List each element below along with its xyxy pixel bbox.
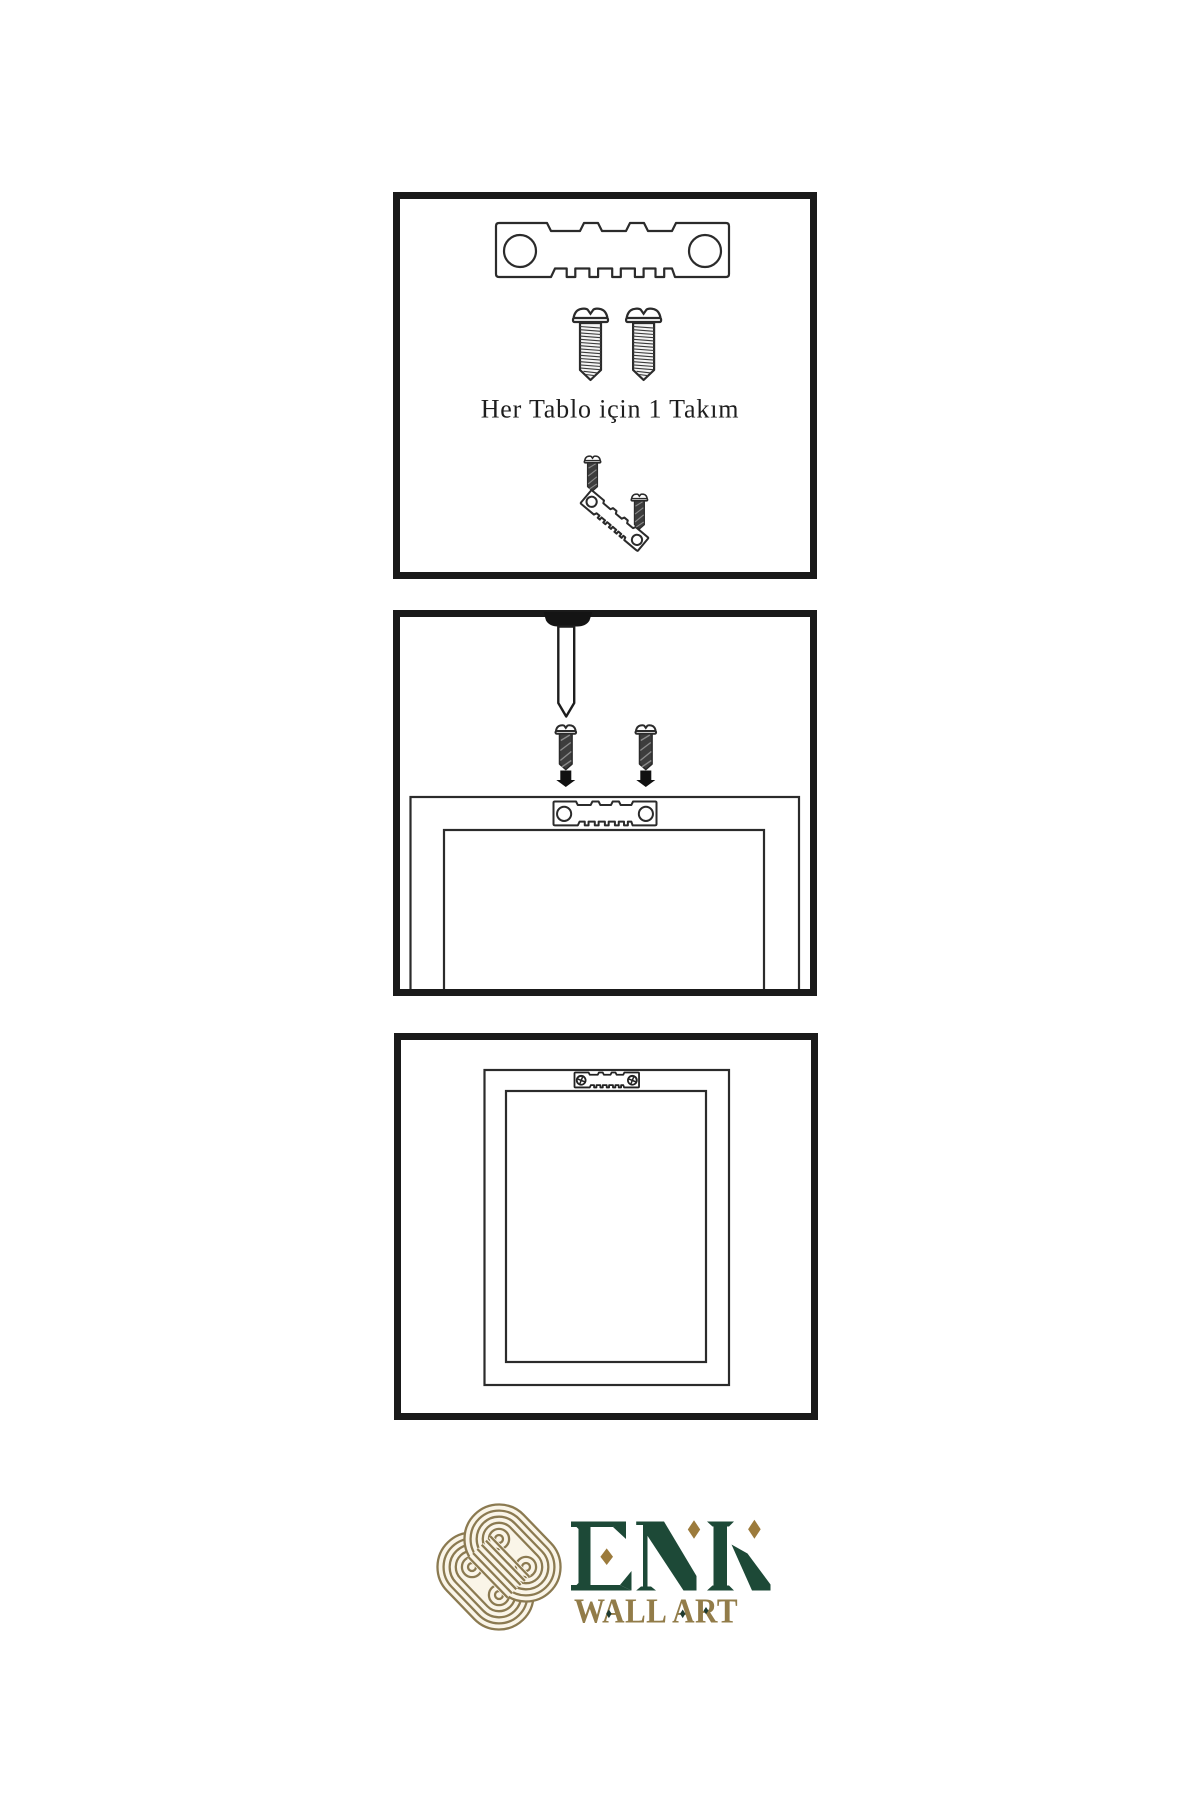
svg-text:WALL ART: WALL ART	[574, 1593, 738, 1631]
svg-text:Her Tablo için 1 Takım: Her Tablo için 1 Takım	[481, 395, 740, 424]
